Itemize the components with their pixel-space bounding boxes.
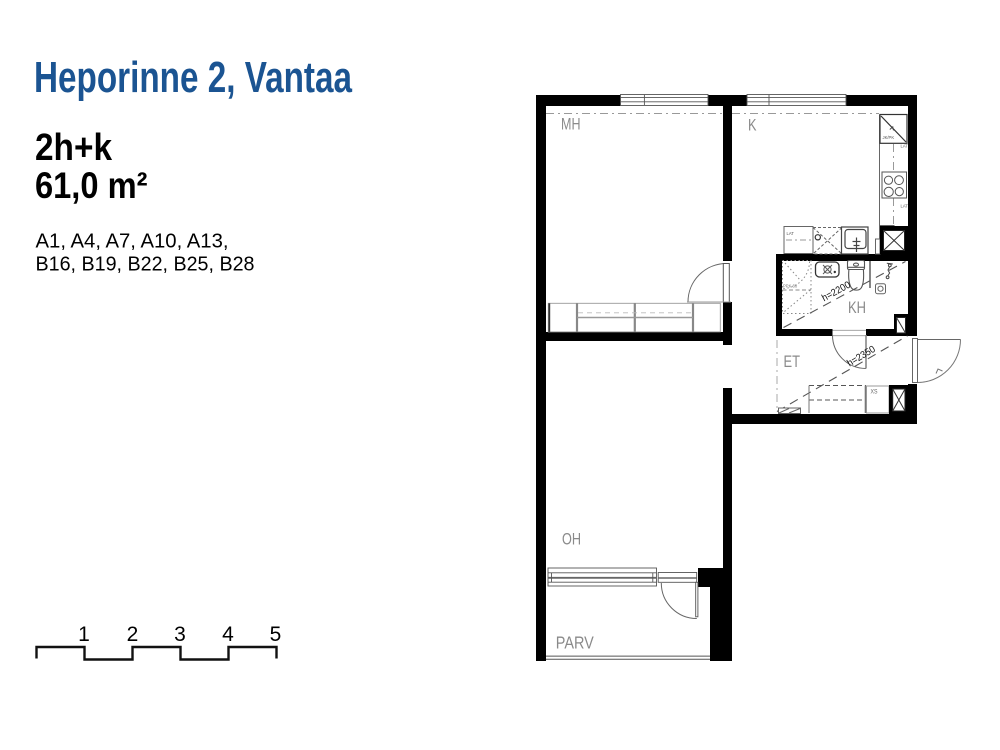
svg-text:LAT: LAT xyxy=(901,144,909,149)
svg-text:ET: ET xyxy=(784,352,801,371)
svg-text:1: 1 xyxy=(78,623,90,646)
svg-text:B16, B19, B22, B25, B28: B16, B19, B22, B25, B28 xyxy=(36,254,255,276)
svg-text:4: 4 xyxy=(222,623,234,646)
svg-text:MH: MH xyxy=(561,115,581,134)
svg-text:LAT: LAT xyxy=(901,204,909,209)
svg-text:PPK 60: PPK 60 xyxy=(783,284,798,289)
svg-text:OH: OH xyxy=(562,530,581,549)
svg-text:3: 3 xyxy=(174,623,186,646)
svg-text:Heporinne 2, Vantaa: Heporinne 2, Vantaa xyxy=(34,53,352,102)
svg-text:5: 5 xyxy=(270,623,282,646)
svg-text:2h+k: 2h+k xyxy=(35,127,113,169)
svg-text:KH: KH xyxy=(848,298,866,317)
svg-text:PARV: PARV xyxy=(556,633,594,653)
svg-text:61,0 m²: 61,0 m² xyxy=(35,165,148,206)
svg-text:2: 2 xyxy=(127,623,139,646)
svg-text:XS: XS xyxy=(871,389,879,396)
svg-text:JK/PK: JK/PK xyxy=(883,135,895,140)
svg-text:A1, A4, A7, A10, A13,: A1, A4, A7, A10, A13, xyxy=(36,231,229,253)
svg-text:LAT: LAT xyxy=(787,231,795,236)
svg-text:K: K xyxy=(748,116,757,135)
